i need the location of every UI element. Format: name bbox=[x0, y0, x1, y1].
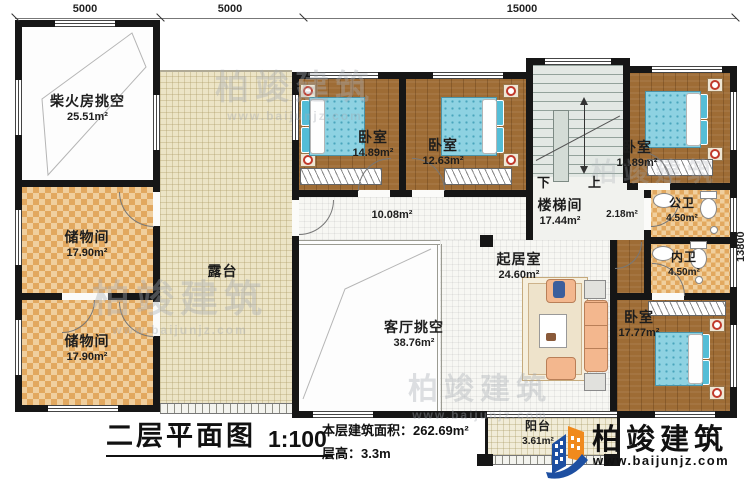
stair-down-label: 下 bbox=[537, 172, 550, 191]
floor-area-note: 本层建筑面积：262.69m² bbox=[322, 420, 469, 443]
window bbox=[545, 58, 611, 65]
wardrobe bbox=[444, 168, 512, 185]
room-label-storage1: 储物间 17.90m² bbox=[47, 228, 127, 260]
terrace-railing bbox=[160, 403, 292, 414]
room-label-ensuite-bath: 内卫 4.50m² bbox=[660, 250, 708, 279]
column bbox=[480, 235, 493, 247]
window bbox=[310, 72, 378, 79]
nightstand bbox=[709, 318, 725, 332]
side-table bbox=[584, 373, 606, 391]
window bbox=[730, 325, 737, 387]
door-opening bbox=[292, 200, 299, 236]
window bbox=[292, 95, 299, 140]
door-opening bbox=[412, 190, 444, 197]
door-opening bbox=[358, 190, 390, 197]
wall bbox=[15, 180, 160, 187]
window bbox=[730, 92, 737, 150]
hall-area-label: 2.18m² bbox=[596, 208, 648, 221]
door-opening bbox=[153, 192, 160, 226]
window bbox=[652, 66, 722, 73]
plan-title: 二层平面图 bbox=[106, 414, 256, 453]
window bbox=[48, 405, 118, 412]
room-label-storage2: 储物间 17.90m² bbox=[47, 332, 127, 364]
floor-height-note: 层高：3.3m bbox=[322, 443, 469, 466]
balcony-pier bbox=[477, 454, 493, 466]
nightstand bbox=[300, 84, 316, 98]
room-label-stairwell: 楼梯间 17.44m² bbox=[524, 196, 596, 228]
brand-website: www.baijunjz.com bbox=[593, 453, 729, 468]
table-item bbox=[546, 333, 556, 341]
floor-plan-canvas: 5000 5000 15000 13800 bbox=[0, 0, 750, 486]
pillow bbox=[482, 99, 497, 154]
sofa bbox=[584, 300, 608, 372]
window bbox=[15, 320, 22, 375]
void-railing-top bbox=[299, 240, 440, 245]
door-opening bbox=[153, 302, 160, 336]
coffee-table bbox=[539, 314, 567, 348]
room-label-bedroom4: 卧室 17.77m² bbox=[610, 308, 668, 340]
stair-arrow-down bbox=[580, 166, 588, 174]
terrace-floor bbox=[160, 70, 292, 411]
pillow bbox=[686, 93, 701, 146]
nightstand bbox=[503, 153, 519, 167]
dimension-top-2: 5000 bbox=[200, 3, 260, 15]
room-label-bedroom3: 卧室 14.89m² bbox=[606, 138, 668, 170]
corridor-area-label: 10.08m² bbox=[352, 208, 432, 222]
pillow bbox=[310, 99, 325, 154]
room-label-bedroom2: 卧室 12.63m² bbox=[412, 136, 474, 168]
nightstand bbox=[709, 386, 725, 400]
window bbox=[153, 95, 160, 150]
room-label-living-void: 客厅挑空 38.76m² bbox=[374, 318, 454, 350]
stair-up-label: 上 bbox=[588, 172, 601, 191]
plan-notes: 本层建筑面积：262.69m² 层高：3.3m bbox=[322, 420, 469, 466]
wall bbox=[644, 237, 651, 300]
door-opening bbox=[62, 293, 108, 300]
wall bbox=[292, 190, 530, 197]
floor-drain bbox=[710, 226, 718, 234]
stair-arrow-up bbox=[580, 97, 588, 105]
room-label-terrace: 露台 bbox=[195, 262, 250, 280]
window bbox=[433, 72, 503, 79]
room-label-bedroom1: 卧室 14.89m² bbox=[342, 128, 404, 160]
pillow bbox=[688, 334, 703, 384]
person-figure bbox=[553, 281, 565, 298]
brand-name: 柏竣建筑 bbox=[592, 416, 728, 458]
side-table bbox=[584, 280, 606, 299]
plan-title-block: 二层平面图 1:100 bbox=[106, 417, 333, 457]
stair-direction-line bbox=[584, 104, 585, 166]
room-label-firewood-void: 柴火房挑空 25.51m² bbox=[40, 92, 135, 124]
window bbox=[15, 80, 22, 135]
nightstand bbox=[503, 84, 519, 98]
terrace-edge-line bbox=[160, 70, 292, 72]
dimension-right: 13800 bbox=[735, 222, 747, 272]
dimension-line-top bbox=[15, 18, 737, 19]
dimension-top-1: 5000 bbox=[55, 3, 115, 15]
room-label-public-bath: 公卫 4.50m² bbox=[658, 196, 706, 225]
plan-scale: 1:100 bbox=[268, 426, 327, 453]
dimension-top-3: 15000 bbox=[487, 3, 557, 15]
window bbox=[15, 210, 22, 265]
brand-logo-icon bbox=[544, 414, 590, 480]
window bbox=[55, 20, 115, 27]
door-opening bbox=[638, 183, 670, 190]
armchair bbox=[546, 357, 576, 380]
room-label-sitting-room: 起居室 24.60m² bbox=[486, 250, 552, 282]
nightstand bbox=[707, 78, 723, 92]
